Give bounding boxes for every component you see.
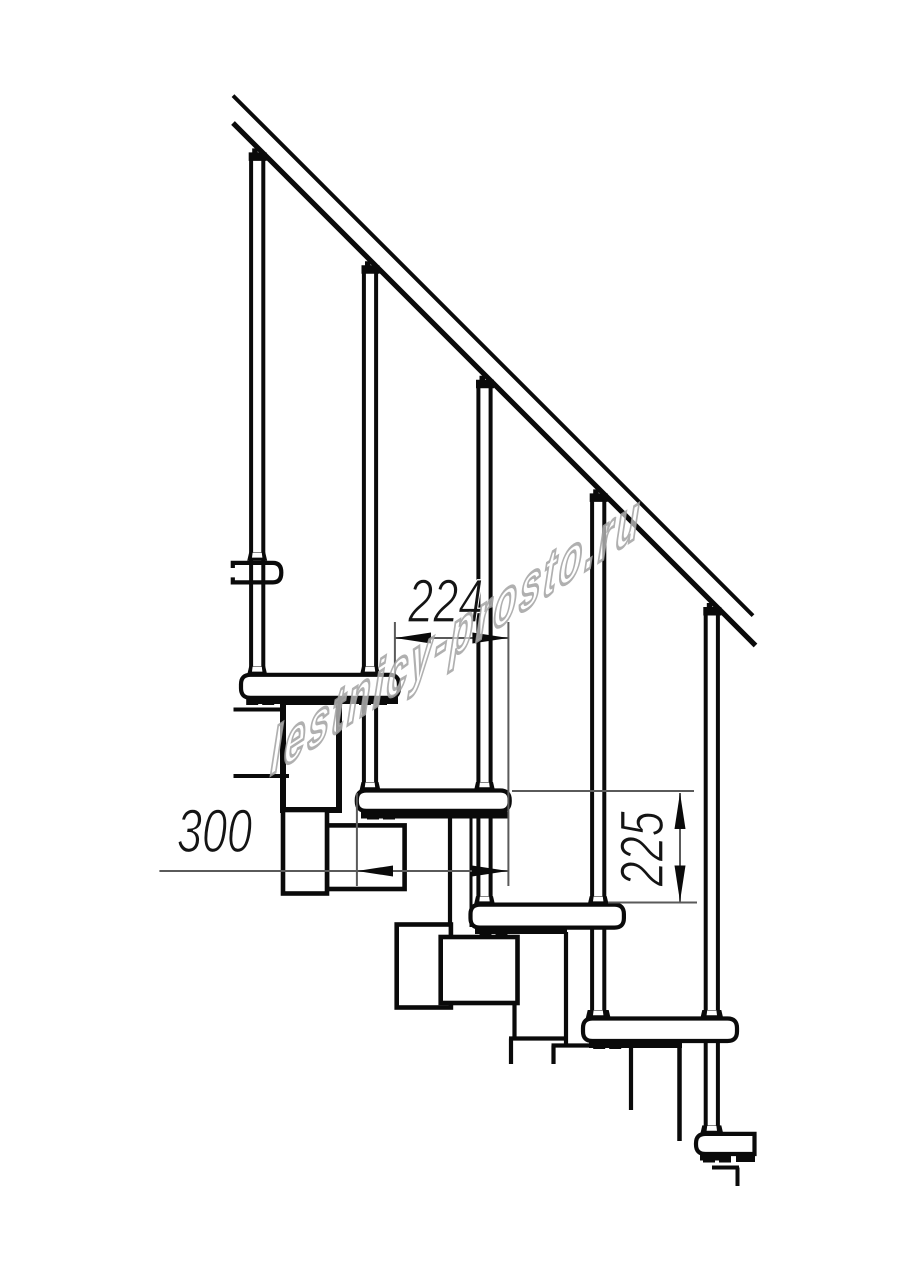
svg-text:225: 225 [608, 811, 676, 887]
svg-text:300: 300 [177, 797, 252, 865]
